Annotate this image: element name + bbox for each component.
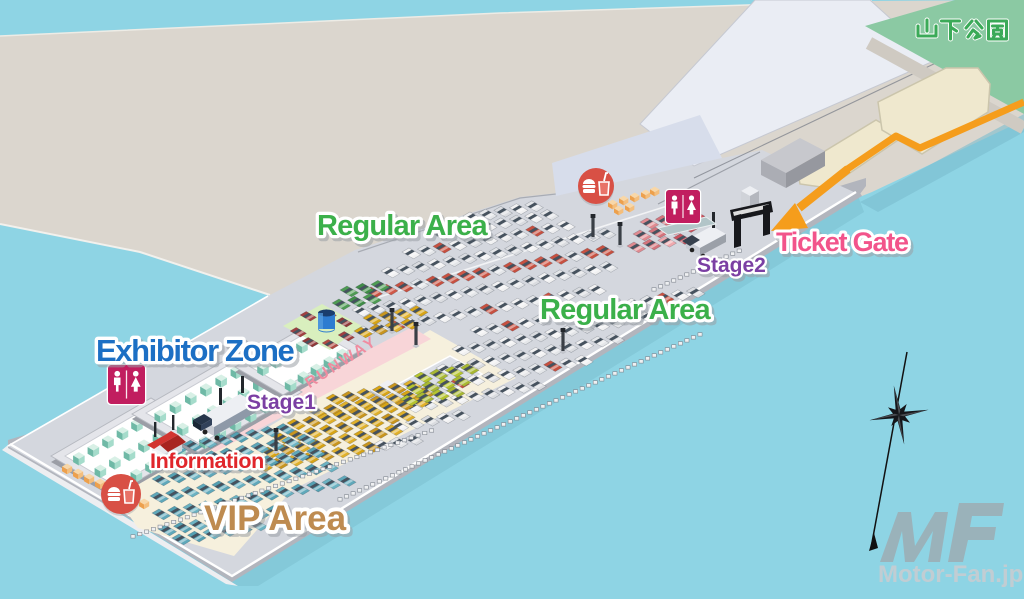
svg-text:Regular Area: Regular Area [317, 210, 489, 242]
svg-text:Stage2: Stage2 [697, 254, 766, 277]
svg-text:Exhibitor Zone: Exhibitor Zone [96, 333, 295, 368]
svg-text:Regular Area: Regular Area [540, 294, 712, 326]
svg-text:Information: Information [150, 449, 264, 473]
svg-text:VIP Area: VIP Area [204, 499, 347, 538]
svg-text:Stage1: Stage1 [247, 391, 316, 414]
svg-text:Ticket Gate: Ticket Gate [776, 227, 909, 257]
svg-text:Motor-Fan.jp: Motor-Fan.jp [878, 561, 1023, 588]
